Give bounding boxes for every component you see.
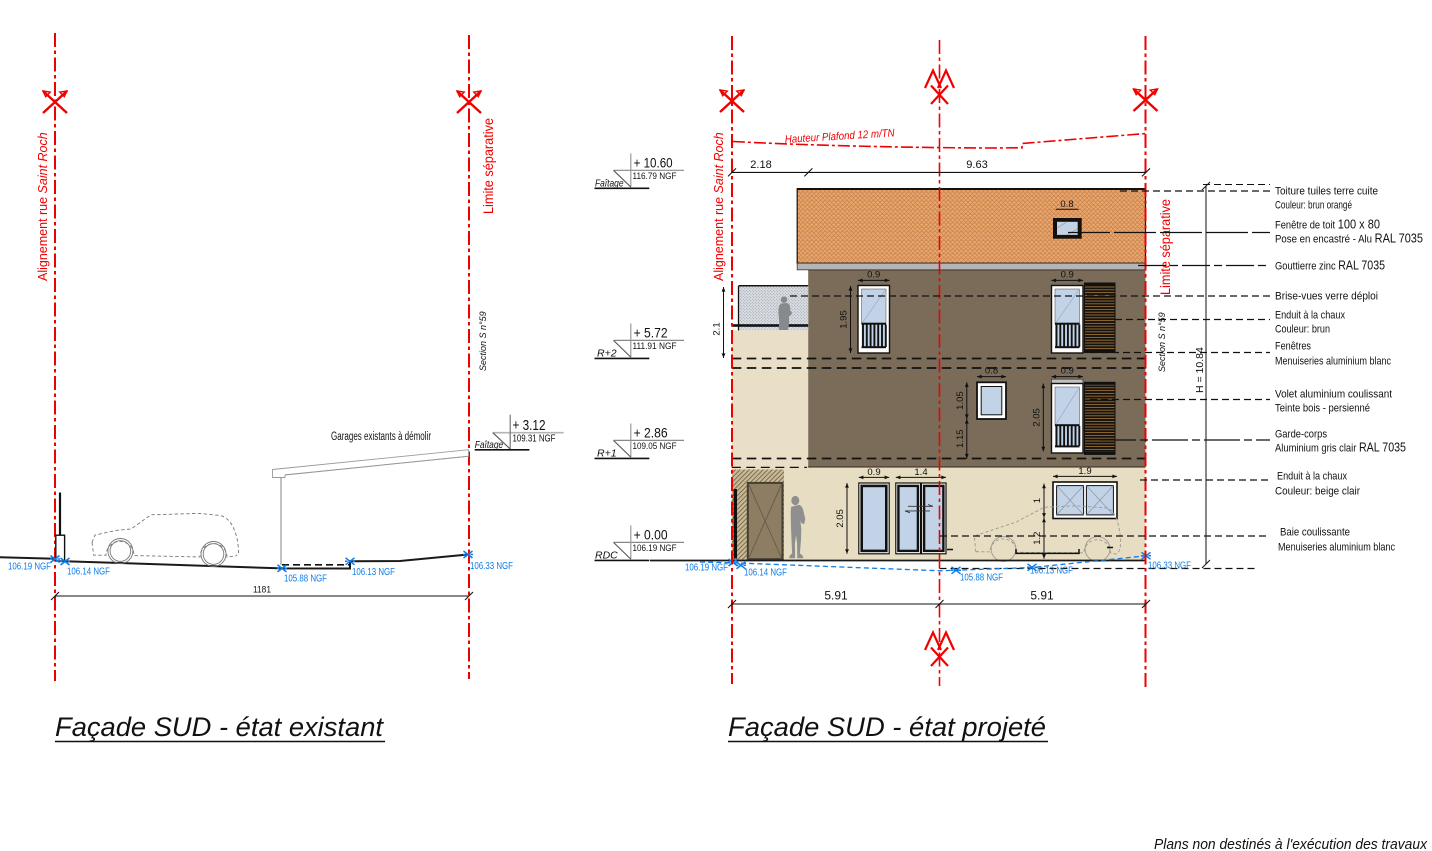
svg-text:Pose en encastré - Alu RAL 703: Pose en encastré - Alu RAL 7035 (1275, 232, 1423, 246)
svg-text:R+2: R+2 (597, 347, 617, 359)
svg-text:Limite séparative: Limite séparative (481, 118, 496, 214)
svg-text:Faîtage: Faîtage (475, 439, 504, 451)
svg-text:106.14 NGF: 106.14 NGF (744, 568, 787, 579)
svg-text:0.8: 0.8 (1060, 199, 1073, 210)
svg-text:2.05: 2.05 (1031, 408, 1042, 427)
svg-text:106.33 NGF: 106.33 NGF (1148, 561, 1191, 572)
svg-text:0.9: 0.9 (867, 270, 880, 281)
svg-text:Toiture tuiles terre cuite: Toiture tuiles terre cuite (1275, 186, 1378, 198)
svg-text:Teinte bois - persienné: Teinte bois - persienné (1275, 403, 1370, 415)
svg-text:2.1: 2.1 (712, 322, 723, 335)
svg-text:Section S n°59: Section S n°59 (478, 311, 488, 371)
svg-text:Façade SUD - état projeté: Façade SUD - état projeté (728, 712, 1046, 742)
svg-text:1: 1 (1032, 498, 1043, 503)
svg-text:Menuiseries aluminium blanc: Menuiseries aluminium blanc (1278, 542, 1395, 554)
svg-text:Brise-vues verre déploi: Brise-vues verre déploi (1275, 291, 1378, 303)
svg-text:1.9: 1.9 (1078, 466, 1091, 477)
svg-text:H = 10.84: H = 10.84 (1194, 347, 1206, 393)
svg-text:106.19 NGF: 106.19 NGF (8, 562, 51, 573)
svg-text:Couleur: beige clair: Couleur: beige clair (1275, 486, 1360, 498)
svg-text:Façade SUD - état existant: Façade SUD - état existant (55, 712, 385, 742)
svg-text:106.13 NGF: 106.13 NGF (1030, 566, 1073, 577)
svg-text:2.05: 2.05 (835, 509, 846, 528)
svg-text:Enduit à la chaux: Enduit à la chaux (1277, 471, 1347, 483)
svg-text:+ 5.72: + 5.72 (634, 325, 668, 341)
svg-text:1.05: 1.05 (955, 391, 966, 410)
svg-text:+ 2.86: + 2.86 (634, 425, 668, 441)
svg-text:5.91: 5.91 (1030, 589, 1054, 603)
svg-text:5.91: 5.91 (824, 589, 848, 603)
svg-text:111.91 NGF: 111.91 NGF (633, 341, 677, 352)
svg-text:116.79 NGF: 116.79 NGF (633, 171, 677, 182)
svg-text:Aluminium gris clair RAL 7035: Aluminium gris clair RAL 7035 (1275, 441, 1406, 455)
svg-text:Enduit à la chaux: Enduit à la chaux (1275, 310, 1345, 322)
svg-text:9.63: 9.63 (966, 159, 987, 171)
svg-text:0.9: 0.9 (1061, 270, 1074, 281)
svg-text:109.31 NGF: 109.31 NGF (513, 434, 556, 445)
svg-text:1.95: 1.95 (839, 310, 850, 329)
svg-text:106.19 NGF: 106.19 NGF (685, 563, 728, 574)
svg-text:106.19 NGF: 106.19 NGF (633, 543, 677, 554)
svg-text:Fenêtres: Fenêtres (1275, 341, 1311, 353)
svg-text:Section S n°59: Section S n°59 (1157, 312, 1167, 372)
svg-text:2.18: 2.18 (750, 159, 771, 171)
svg-text:1.15: 1.15 (955, 429, 966, 448)
svg-text:+ 10.60: + 10.60 (634, 155, 673, 171)
svg-text:Couleur: brun: Couleur: brun (1275, 324, 1330, 336)
svg-text:109.05 NGF: 109.05 NGF (633, 441, 677, 452)
svg-text:Plans non destinés à l'exécuti: Plans non destinés à l'exécution des tra… (1154, 837, 1428, 851)
svg-text:Menuiseries aluminium blanc: Menuiseries aluminium blanc (1275, 356, 1391, 368)
svg-text:Fenêtre de toit 100 x 80: Fenêtre de toit 100 x 80 (1275, 217, 1380, 232)
svg-text:Hauteur Plafond 12 m/TN: Hauteur Plafond 12 m/TN (784, 127, 895, 146)
svg-text:0.8: 0.8 (985, 366, 998, 377)
svg-text:Baie coulissante: Baie coulissante (1280, 527, 1350, 539)
svg-text:+ 3.12: + 3.12 (513, 417, 546, 434)
svg-text:+ 0.00: + 0.00 (634, 527, 668, 543)
svg-text:RDC: RDC (595, 549, 618, 561)
svg-text:Alignement rue Saint Roch: Alignement rue Saint Roch (36, 132, 50, 281)
svg-text:1.4: 1.4 (914, 467, 927, 478)
svg-text:Couleur: brun orangé: Couleur: brun orangé (1275, 200, 1352, 212)
svg-text:Alignement rue Saint Roch: Alignement rue Saint Roch (712, 132, 726, 281)
svg-text:0.9: 0.9 (1061, 366, 1074, 377)
svg-text:Gouttierre zinc RAL 7035: Gouttierre zinc RAL 7035 (1275, 259, 1385, 273)
svg-text:Garde-corps: Garde-corps (1275, 429, 1327, 441)
svg-text:106.33 NGF: 106.33 NGF (470, 561, 513, 572)
svg-text:106.14 NGF: 106.14 NGF (67, 567, 110, 578)
svg-text:106.13 NGF: 106.13 NGF (352, 567, 395, 578)
svg-text:105.88 NGF: 105.88 NGF (284, 574, 327, 585)
svg-text:Garages existants à démolir: Garages existants à démolir (331, 431, 431, 443)
svg-text:105.88 NGF: 105.88 NGF (960, 573, 1003, 584)
svg-text:1.2: 1.2 (1032, 532, 1043, 545)
svg-text:R+1: R+1 (597, 447, 617, 459)
svg-text:1181: 1181 (253, 585, 271, 596)
svg-text:Limite séparative: Limite séparative (1158, 199, 1173, 295)
svg-text:0.9: 0.9 (867, 467, 880, 478)
svg-text:Volet aluminium coulissant: Volet aluminium coulissant (1275, 389, 1392, 401)
svg-text:Faîtage: Faîtage (595, 177, 624, 189)
